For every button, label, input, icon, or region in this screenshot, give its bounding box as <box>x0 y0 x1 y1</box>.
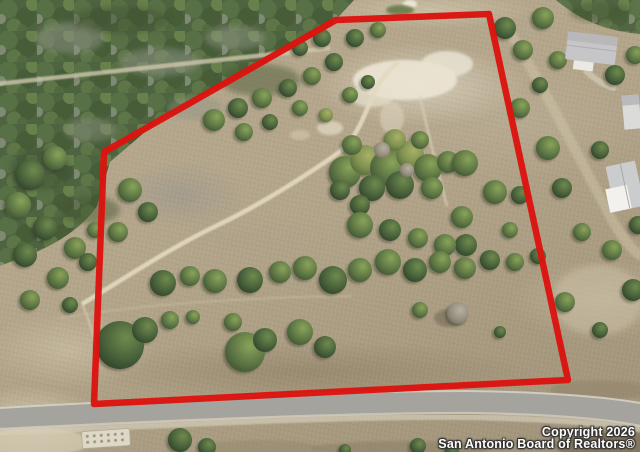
watermark-line2: San Antonio Board of Realtors® <box>438 438 635 450</box>
dead-tree <box>434 302 469 327</box>
concrete-pad <box>81 428 130 448</box>
trees-central-cluster <box>329 129 459 215</box>
watermark: Copyright 2026 San Antonio Board of Real… <box>438 426 635 450</box>
trees-mid-belt <box>108 178 546 296</box>
house-right-edge-upper <box>622 94 640 129</box>
aerial-photo: Copyright 2026 San Antonio Board of Real… <box>0 0 640 452</box>
scene-graphics <box>0 0 640 452</box>
